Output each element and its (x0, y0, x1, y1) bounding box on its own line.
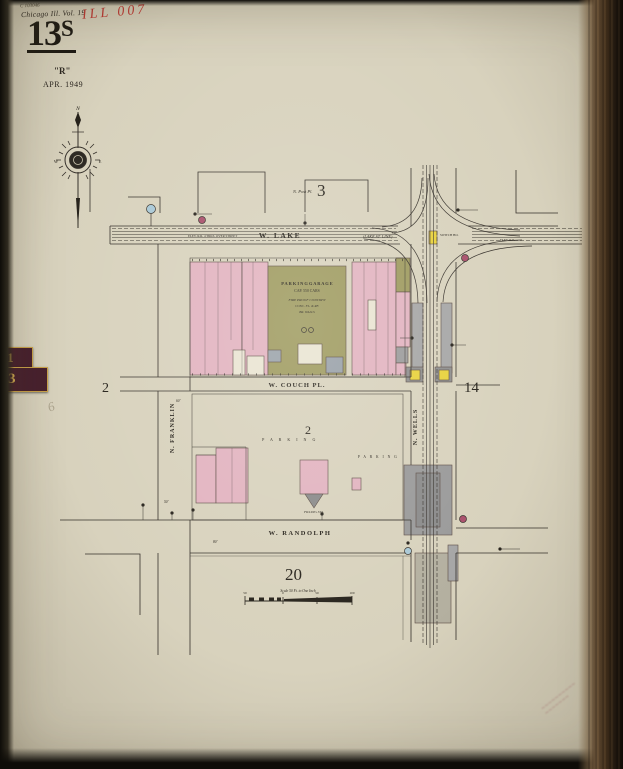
series-mark: "R" (54, 66, 71, 76)
sanborn-map-page: W. LAKE (LAKE ST. LINE) ELEV. R.R. 4 TRK… (0, 0, 623, 769)
el-platform-west (412, 303, 423, 373)
el-station-house-east-yellow (439, 370, 449, 380)
el-structure-south-2 (448, 545, 458, 581)
width-label-couch: 60' (176, 399, 181, 403)
street-label-couch: W. COUCH PL. (269, 382, 326, 389)
building-pink-block2-a (196, 455, 216, 503)
el-note-west: ELEV. R.R. 4 TRKS. OVER STREET (188, 234, 237, 238)
scale-tick-left: 50 (243, 591, 247, 595)
garage-line2: CAP. 550 CARS (294, 289, 319, 293)
garage-line4: CONC. FL. & RF. (295, 304, 320, 308)
scale-label: Scale 50 Ft. to One Inch (280, 589, 315, 593)
fire-alarm-symbol-3 (460, 516, 467, 523)
el-note-east: ELEV. R.R. (500, 238, 515, 242)
building-pink-wells-small (396, 363, 406, 375)
book-binding-texture (588, 0, 623, 769)
garage-gray-annex-2 (268, 350, 281, 362)
sheet-number: 13S (27, 17, 76, 53)
adjacent-sheet-west: 2 (102, 381, 109, 396)
adjacent-sheet-east: 14 (464, 380, 480, 396)
photo-edge-bottom (0, 748, 623, 769)
building-olive-corner (396, 258, 410, 292)
scale-bar (245, 596, 352, 605)
el-structure-randolph-core (416, 473, 440, 527)
building-pink-wells-strip (396, 292, 410, 347)
scale-tick-right: 100 (349, 591, 354, 595)
width-label-randolph: 80' (213, 540, 218, 544)
parking-label-a: P A R K I N G (262, 437, 318, 442)
lake-line-note: (LAKE ST. LINE) (363, 234, 393, 239)
parking-label-b: P A R K I N G (358, 455, 398, 459)
courtyard-notch (233, 350, 245, 375)
switch-house-label: SWITCH HO. (440, 233, 459, 237)
el-platform-east (441, 303, 452, 373)
street-label-franklin: N. FRANKLIN (170, 403, 176, 453)
building-pink-filling-station (300, 460, 328, 494)
adjacent-sheet-north: 3 (317, 181, 326, 200)
building-pink-block2-c (352, 478, 361, 490)
garage-inner-structure (298, 344, 322, 364)
garage-line3: FIRE PROOF CONSTR'N (288, 298, 327, 302)
fire-alarm-symbol (199, 217, 206, 224)
filling-station-label: FILLING STA. (303, 510, 324, 514)
compass-north-label: N (75, 106, 80, 112)
compass-east-label: E (99, 159, 102, 164)
scale-tick-mid: 50 (315, 591, 319, 595)
photo-edge-top (0, 0, 623, 6)
book-edge-left (0, 0, 14, 769)
el-station-house-west-yellow (410, 370, 420, 380)
water-tank-symbol-2 (405, 548, 412, 555)
sheet-number-suffix: S (61, 16, 74, 41)
el-structure-south (415, 553, 451, 623)
block2-number: 2 (305, 423, 311, 437)
street-label-lake: W. LAKE (259, 231, 301, 240)
sheet-number-value: 13 (27, 13, 61, 53)
street-label-post-place: N. Post Pl. (292, 189, 313, 194)
street-label-randolph: W. RANDOLPH (269, 530, 332, 537)
structure-gray-wells (396, 347, 408, 363)
filling-station-canopy (305, 494, 323, 508)
map-date: APR. 1949 (43, 80, 83, 89)
scale-tick-zero: 0 (282, 591, 284, 595)
garage-line1: P A R K I N G G A R A G E (281, 281, 333, 286)
adjacent-sheet-south: 20 (285, 565, 302, 584)
courtyard-notch-2 (247, 356, 264, 375)
fire-alarm-symbol-2 (462, 255, 469, 262)
garage-gray-annex (326, 357, 343, 373)
water-tank-symbol (147, 205, 156, 214)
map-canvas: W. LAKE (LAKE ST. LINE) ELEV. R.R. 4 TRK… (0, 0, 623, 769)
building-pink-slit (368, 300, 376, 330)
garage-line5: BR. WALLS (299, 310, 315, 314)
width-label-franklin: 50' (164, 500, 169, 504)
street-label-wells: N. WELLS (413, 409, 419, 446)
